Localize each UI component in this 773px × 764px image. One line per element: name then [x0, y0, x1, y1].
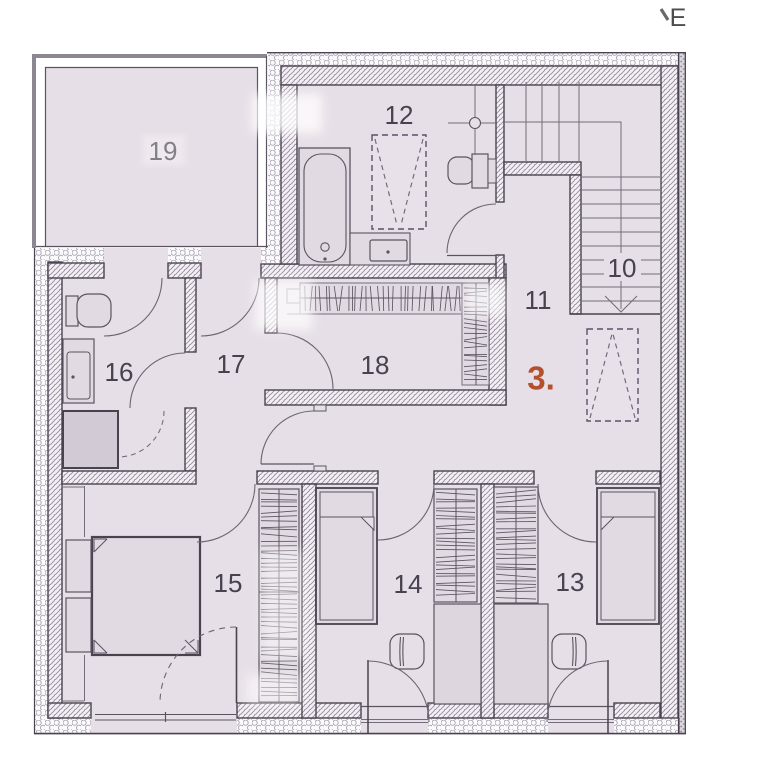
svg-text:E: E [670, 4, 687, 32]
svg-text:10: 10 [608, 253, 637, 283]
svg-text:14: 14 [394, 569, 423, 599]
svg-text:12: 12 [385, 100, 414, 130]
svg-text:18: 18 [361, 350, 390, 380]
svg-text:16: 16 [105, 357, 134, 387]
svg-text:11: 11 [525, 285, 552, 315]
svg-text:15: 15 [214, 568, 243, 598]
svg-text:17: 17 [217, 349, 246, 379]
svg-text:13: 13 [556, 567, 585, 597]
svg-text:3.: 3. [527, 360, 555, 397]
